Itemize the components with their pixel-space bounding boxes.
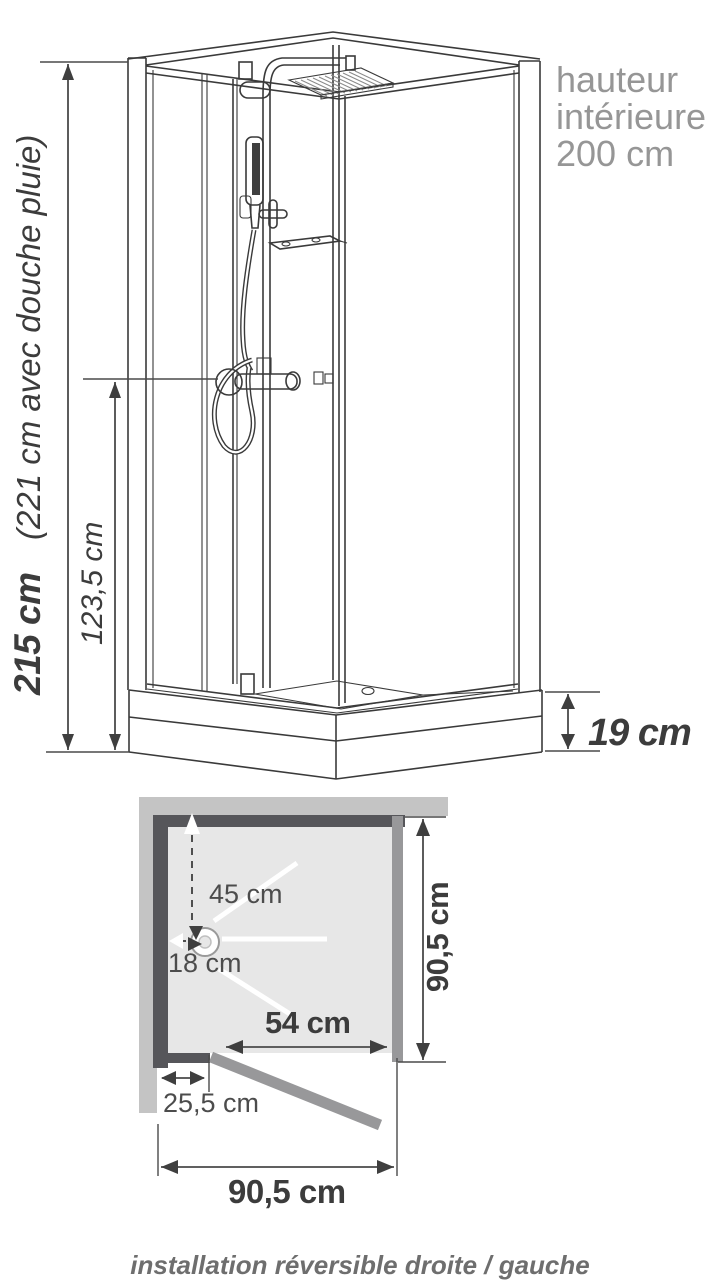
door-bottom-bracket — [241, 674, 254, 694]
dimension-total-height: 215 cm (221 cm avec douche pluie) — [7, 62, 129, 752]
wall-handle-icon — [314, 372, 323, 384]
total-height-note-label: (221 cm avec douche pluie) — [10, 135, 47, 540]
drain-offset-side-label: 18 cm — [168, 948, 242, 978]
soap-shelf-icon — [270, 236, 347, 249]
drain-3d-icon — [362, 688, 374, 695]
dimension-mixer-height: 123,5 cm — [76, 379, 218, 750]
plan-view: 45 cm 18 cm 54 cm 90,5 cm 25,5 cm — [139, 797, 455, 1210]
outer-wall-top — [139, 797, 448, 816]
elevation-view: 215 cm (221 cm avec douche pluie) 123,5 … — [7, 32, 706, 779]
mixer-height-label: 123,5 cm — [76, 522, 109, 645]
cabin-frame-drawing — [128, 32, 540, 713]
inner-depth-label: 90,5 cm — [420, 882, 455, 992]
interior-height-line1: hauteur — [556, 59, 678, 100]
interior-height-line2: intérieure — [556, 96, 706, 137]
shower-tray-drawing — [129, 681, 542, 779]
drain-offset-back-label: 45 cm — [209, 879, 283, 909]
interior-height-annotation: hauteur intérieure 200 cm — [556, 59, 706, 174]
column-bracket-icon — [240, 82, 270, 98]
door-top-bracket — [239, 62, 252, 79]
total-height-label: 215 cm — [7, 573, 48, 697]
interior-height-line3: 200 cm — [556, 133, 674, 174]
outer-width-label: 90,5 cm — [228, 1173, 346, 1210]
shower-cabin-technical-diagram: 215 cm (221 cm avec douche pluie) 123,5 … — [0, 0, 720, 1286]
hinge-offset-label: 25,5 cm — [163, 1088, 259, 1118]
door-width-label: 54 cm — [265, 1005, 350, 1040]
dimension-hinge-offset: 25,5 cm — [161, 1055, 259, 1118]
glass-panel-right — [392, 816, 403, 1062]
tray-height-label: 19 cm — [588, 712, 691, 754]
bottom-wall-stub — [168, 1053, 210, 1063]
shower-hose-drawing — [214, 230, 254, 452]
diagram-page: 215 cm (221 cm avec douche pluie) 123,5 … — [0, 0, 720, 1286]
dimension-tray-height: 19 cm — [545, 692, 691, 754]
dimension-inner-depth: 90,5 cm — [398, 817, 455, 1062]
caption: installation réversible droite / gauche — [130, 1250, 589, 1280]
inner-wall-left — [153, 815, 168, 1068]
